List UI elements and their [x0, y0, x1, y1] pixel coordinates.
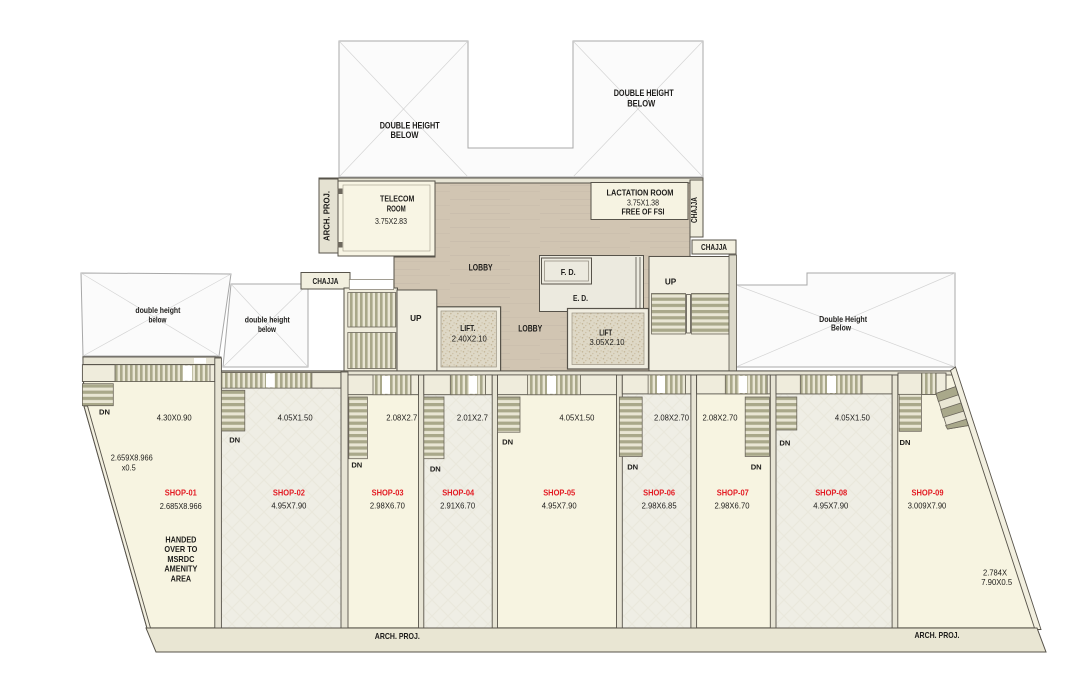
svg-text:LIFT.: LIFT.: [460, 324, 475, 333]
svg-text:OVER TO: OVER TO: [164, 544, 197, 554]
svg-text:SHOP-06: SHOP-06: [643, 488, 675, 498]
svg-text:LOBBY: LOBBY: [518, 324, 542, 334]
svg-text:AREA: AREA: [171, 573, 192, 583]
svg-text:4.30X0.90: 4.30X0.90: [157, 414, 192, 423]
svg-text:DN: DN: [229, 436, 240, 445]
svg-text:LIFT: LIFT: [599, 328, 612, 337]
svg-text:4.05X1.50: 4.05X1.50: [835, 414, 870, 423]
svg-text:CHAJJA: CHAJJA: [701, 243, 727, 252]
svg-text:2.685X8.966: 2.685X8.966: [160, 502, 202, 511]
svg-text:4.05X1.50: 4.05X1.50: [559, 414, 594, 423]
svg-text:HANDED: HANDED: [165, 535, 196, 545]
svg-text:double height: double height: [245, 315, 290, 325]
svg-text:2.08X2.70: 2.08X2.70: [654, 414, 689, 423]
svg-text:2.98X6.70: 2.98X6.70: [715, 502, 750, 511]
svg-text:7.90X0.5: 7.90X0.5: [981, 578, 1012, 587]
svg-text:AMENITY: AMENITY: [164, 564, 197, 574]
svg-text:DOUBLE HEIGHT: DOUBLE HEIGHT: [614, 88, 674, 99]
svg-text:DN: DN: [900, 438, 911, 447]
svg-text:ARCH. PROJ.: ARCH. PROJ.: [323, 191, 332, 241]
svg-text:below: below: [149, 315, 167, 325]
svg-text:TELECOM: TELECOM: [380, 194, 414, 203]
svg-text:4.95X7.90: 4.95X7.90: [271, 502, 306, 511]
svg-text:3.05X2.10: 3.05X2.10: [590, 338, 625, 347]
svg-text:SHOP-03: SHOP-03: [372, 488, 404, 498]
svg-text:2.784X: 2.784X: [983, 568, 1007, 577]
svg-text:SHOP-08: SHOP-08: [815, 488, 847, 498]
svg-text:double height: double height: [135, 305, 180, 315]
svg-text:3.009X7.90: 3.009X7.90: [908, 502, 947, 511]
svg-text:Below: Below: [831, 322, 851, 332]
svg-text:DN: DN: [751, 463, 762, 472]
svg-text:DN: DN: [99, 408, 110, 417]
svg-text:BELOW: BELOW: [391, 130, 419, 141]
svg-text:DN: DN: [351, 460, 362, 469]
svg-text:2.08X2.7: 2.08X2.7: [386, 414, 417, 423]
svg-text:LOBBY: LOBBY: [469, 262, 493, 272]
svg-text:DN: DN: [430, 464, 441, 473]
svg-text:ARCH. PROJ.: ARCH. PROJ.: [375, 632, 420, 641]
svg-text:below: below: [258, 324, 276, 334]
svg-text:2.98X6.70: 2.98X6.70: [370, 502, 405, 511]
svg-text:BELOW: BELOW: [627, 98, 655, 109]
svg-text:4.95X7.90: 4.95X7.90: [542, 502, 577, 511]
svg-text:FREE OF FSI: FREE OF FSI: [622, 208, 665, 217]
svg-text:SHOP-05: SHOP-05: [543, 488, 575, 498]
svg-text:ARCH. PROJ.: ARCH. PROJ.: [915, 631, 960, 640]
svg-text:E. D.: E. D.: [573, 294, 588, 303]
svg-text:SHOP-09: SHOP-09: [912, 488, 944, 498]
svg-text:SHOP-02: SHOP-02: [273, 488, 305, 498]
svg-text:MSRDC: MSRDC: [167, 554, 194, 564]
svg-text:UP: UP: [410, 314, 422, 323]
svg-text:2.659X8.966: 2.659X8.966: [111, 454, 153, 463]
svg-text:2.98X6.85: 2.98X6.85: [642, 502, 677, 511]
svg-text:CHAJJA: CHAJJA: [313, 277, 339, 286]
svg-text:3.75X2.83: 3.75X2.83: [375, 217, 407, 226]
svg-text:SHOP-01: SHOP-01: [165, 488, 197, 498]
svg-text:2.01X2.7: 2.01X2.7: [457, 414, 488, 423]
svg-text:DN: DN: [779, 438, 790, 447]
svg-text:SHOP-04: SHOP-04: [442, 488, 474, 498]
svg-text:F. D.: F. D.: [561, 268, 576, 277]
svg-text:3.75X1.38: 3.75X1.38: [627, 199, 659, 208]
svg-text:x0.5: x0.5: [122, 463, 136, 472]
svg-text:2.08X2.70: 2.08X2.70: [703, 414, 738, 423]
svg-text:SHOP-07: SHOP-07: [717, 488, 749, 498]
svg-text:DN: DN: [502, 437, 513, 446]
svg-text:UP: UP: [665, 278, 677, 287]
svg-text:2.91X6.70: 2.91X6.70: [440, 502, 475, 511]
svg-text:CHAJJA: CHAJJA: [690, 197, 699, 223]
svg-text:2.40X2.10: 2.40X2.10: [452, 335, 487, 344]
svg-text:DN: DN: [627, 463, 638, 472]
svg-text:4.05X1.50: 4.05X1.50: [278, 414, 313, 423]
svg-text:4.95X7.90: 4.95X7.90: [813, 502, 848, 511]
svg-text:LACTATION ROOM: LACTATION ROOM: [607, 189, 674, 198]
svg-text:ROOM: ROOM: [387, 204, 406, 213]
